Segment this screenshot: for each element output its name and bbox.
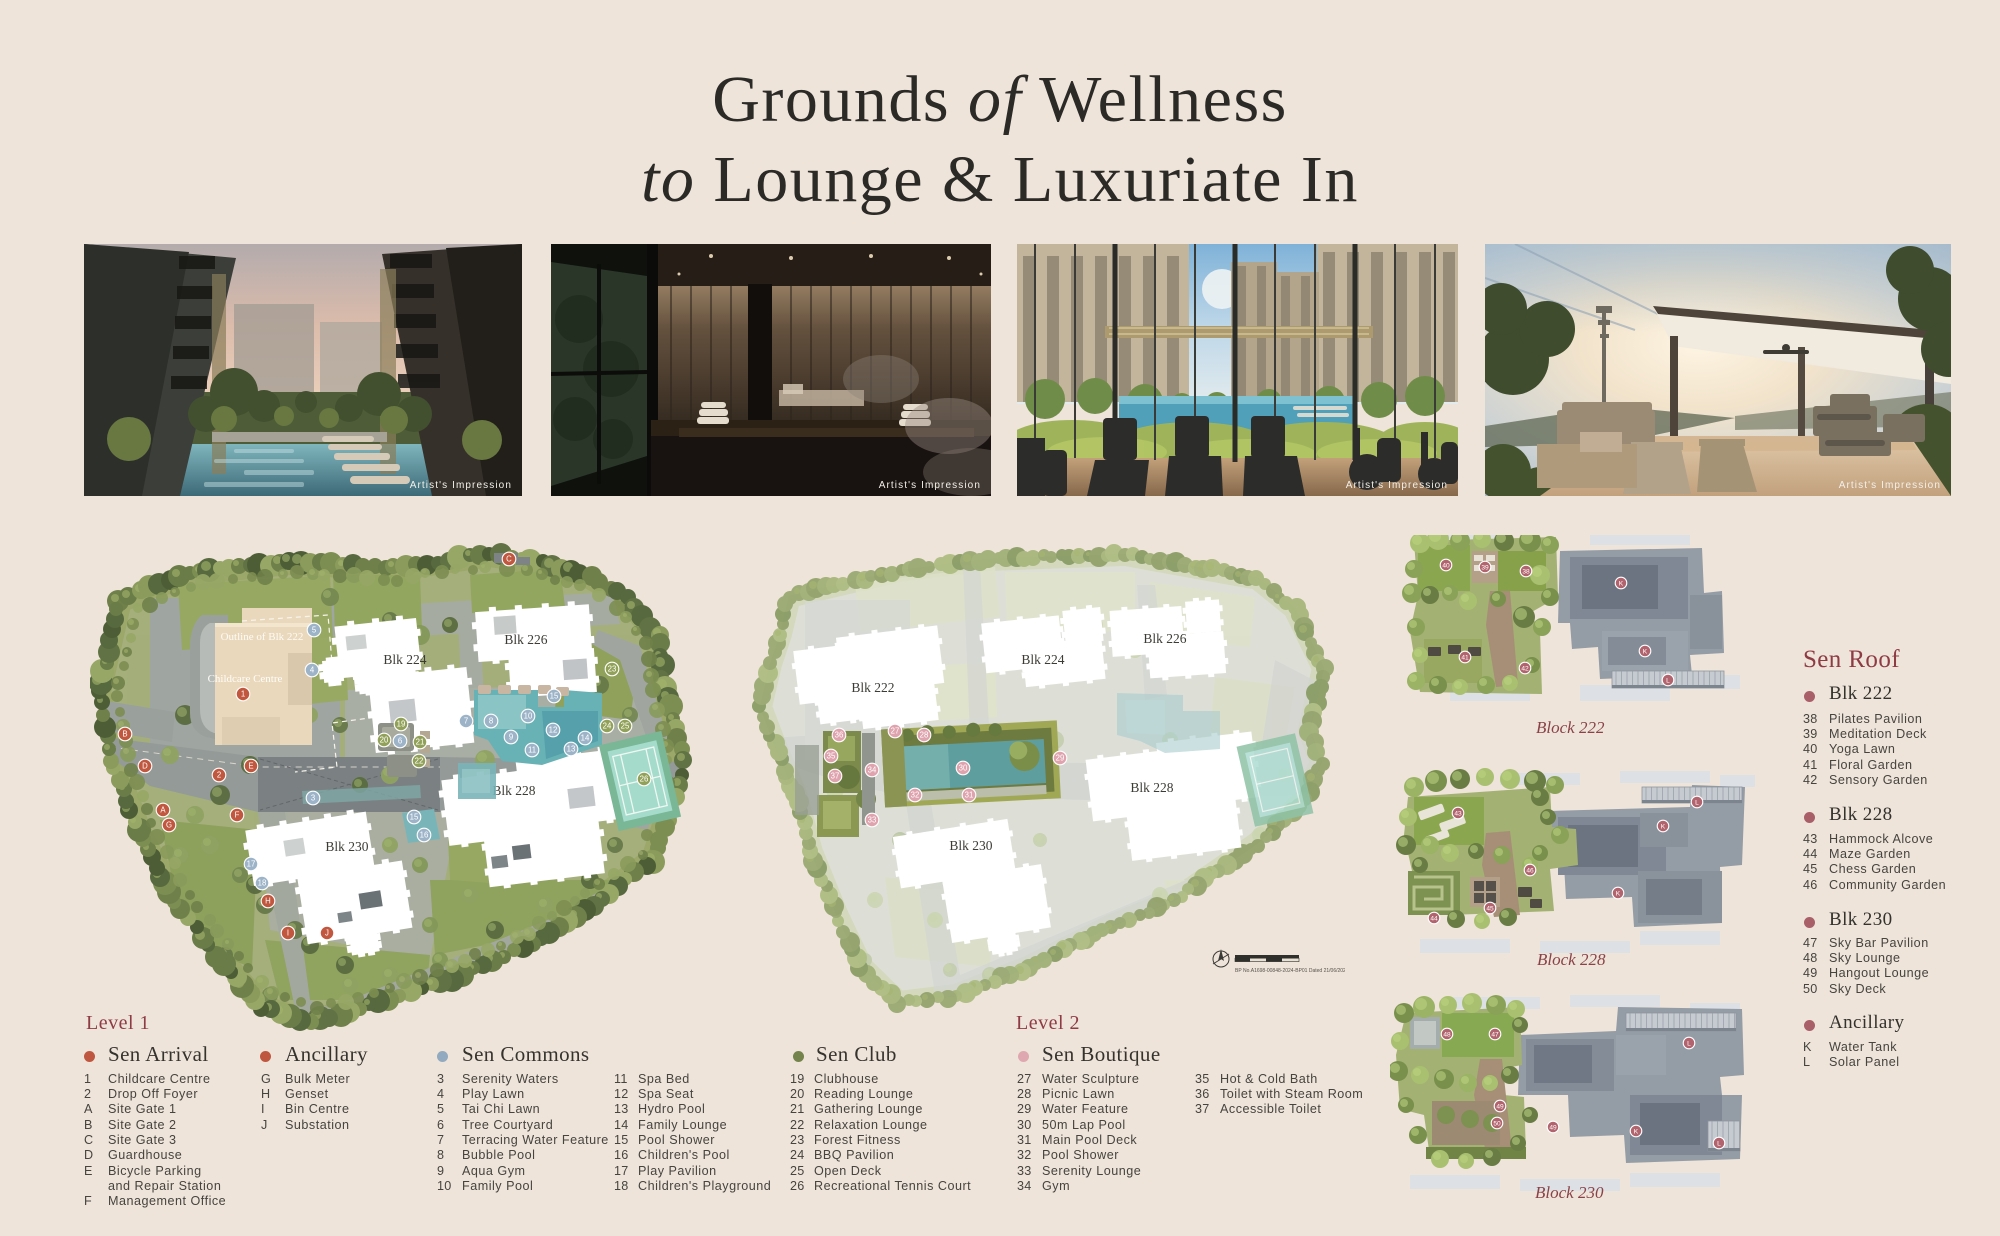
svg-text:26: 26 — [640, 775, 649, 784]
svg-text:J: J — [325, 929, 329, 938]
svg-text:11: 11 — [528, 746, 536, 755]
svg-text:21: 21 — [416, 738, 425, 747]
svg-text:5: 5 — [312, 626, 317, 635]
svg-text:34: 34 — [868, 766, 877, 775]
svg-text:7: 7 — [464, 717, 468, 726]
svg-text:E: E — [248, 762, 253, 771]
svg-text:H: H — [265, 897, 271, 906]
svg-text:K: K — [1661, 823, 1666, 830]
svg-text:33: 33 — [868, 816, 877, 825]
svg-text:L: L — [1666, 677, 1670, 684]
svg-text:29: 29 — [1056, 754, 1065, 763]
svg-text:Blk 230: Blk 230 — [949, 838, 992, 853]
svg-text:BP No.A1698-00848-2024-BP01 Da: BP No.A1698-00848-2024-BP01 Dated 21/06/… — [1235, 968, 1345, 974]
svg-text:Blk 230: Blk 230 — [325, 839, 368, 854]
svg-text:K: K — [1619, 580, 1624, 587]
svg-text:4: 4 — [310, 666, 315, 675]
svg-text:Blk 228: Blk 228 — [1130, 780, 1173, 795]
svg-text:44: 44 — [1430, 915, 1438, 922]
svg-text:20: 20 — [380, 736, 389, 745]
svg-text:15: 15 — [550, 692, 559, 701]
svg-text:Blk 222: Blk 222 — [851, 680, 894, 695]
svg-text:Blk 226: Blk 226 — [1143, 631, 1186, 646]
svg-text:K: K — [1616, 890, 1621, 897]
svg-text:12: 12 — [549, 726, 558, 735]
svg-text:24: 24 — [603, 722, 612, 731]
svg-text:47: 47 — [1491, 1031, 1499, 1038]
svg-text:3: 3 — [311, 794, 315, 803]
svg-text:8: 8 — [489, 717, 493, 726]
svg-text:Childcare Centre: Childcare Centre — [208, 673, 283, 685]
svg-text:49: 49 — [1496, 1103, 1504, 1110]
svg-text:L: L — [1695, 799, 1699, 806]
svg-text:K: K — [1643, 648, 1648, 655]
svg-text:L: L — [1717, 1140, 1721, 1147]
svg-text:22: 22 — [415, 757, 424, 766]
svg-text:15: 15 — [410, 813, 419, 822]
svg-text:49: 49 — [1549, 1124, 1557, 1131]
svg-text:14: 14 — [581, 734, 590, 743]
svg-text:L: L — [1687, 1040, 1691, 1047]
svg-text:13: 13 — [567, 745, 576, 754]
svg-text:28: 28 — [920, 731, 929, 740]
svg-text:1: 1 — [241, 690, 245, 699]
svg-text:50: 50 — [1493, 1120, 1501, 1127]
svg-text:41: 41 — [1461, 654, 1469, 661]
svg-text:I: I — [287, 929, 289, 938]
svg-text:39: 39 — [1481, 564, 1489, 571]
svg-text:F: F — [235, 811, 240, 820]
svg-text:10: 10 — [524, 712, 533, 721]
svg-text:B: B — [122, 730, 127, 739]
svg-text:Blk 224: Blk 224 — [1021, 652, 1064, 667]
svg-text:25: 25 — [621, 722, 630, 731]
svg-text:37: 37 — [831, 772, 840, 781]
svg-text:40: 40 — [1442, 562, 1450, 569]
svg-text:G: G — [166, 821, 172, 830]
svg-text:19: 19 — [397, 720, 406, 729]
svg-text:27: 27 — [891, 727, 900, 736]
svg-text:35: 35 — [827, 752, 836, 761]
svg-text:31: 31 — [965, 791, 974, 800]
svg-text:23: 23 — [608, 665, 617, 674]
svg-text:46: 46 — [1526, 867, 1534, 874]
svg-text:42: 42 — [1521, 665, 1529, 672]
svg-text:Blk 224: Blk 224 — [383, 652, 426, 667]
svg-text:32: 32 — [911, 791, 920, 800]
svg-text:43: 43 — [1454, 810, 1462, 817]
svg-text:18: 18 — [258, 879, 267, 888]
svg-text:Blk 226: Blk 226 — [504, 632, 547, 647]
svg-text:16: 16 — [420, 831, 429, 840]
svg-text:2: 2 — [217, 771, 221, 780]
svg-text:30: 30 — [959, 764, 968, 773]
svg-text:Outline of Blk 222: Outline of Blk 222 — [221, 631, 304, 643]
svg-text:17: 17 — [247, 860, 256, 869]
svg-text:48: 48 — [1443, 1031, 1451, 1038]
svg-text:6: 6 — [398, 737, 402, 746]
svg-text:9: 9 — [509, 733, 513, 742]
svg-text:36: 36 — [835, 731, 844, 740]
svg-text:C: C — [506, 555, 512, 564]
svg-text:38: 38 — [1522, 568, 1530, 575]
svg-text:D: D — [142, 762, 148, 771]
svg-text:45: 45 — [1486, 905, 1494, 912]
svg-text:A: A — [160, 806, 166, 815]
svg-text:Blk 228: Blk 228 — [492, 783, 535, 798]
svg-text:K: K — [1634, 1128, 1639, 1135]
